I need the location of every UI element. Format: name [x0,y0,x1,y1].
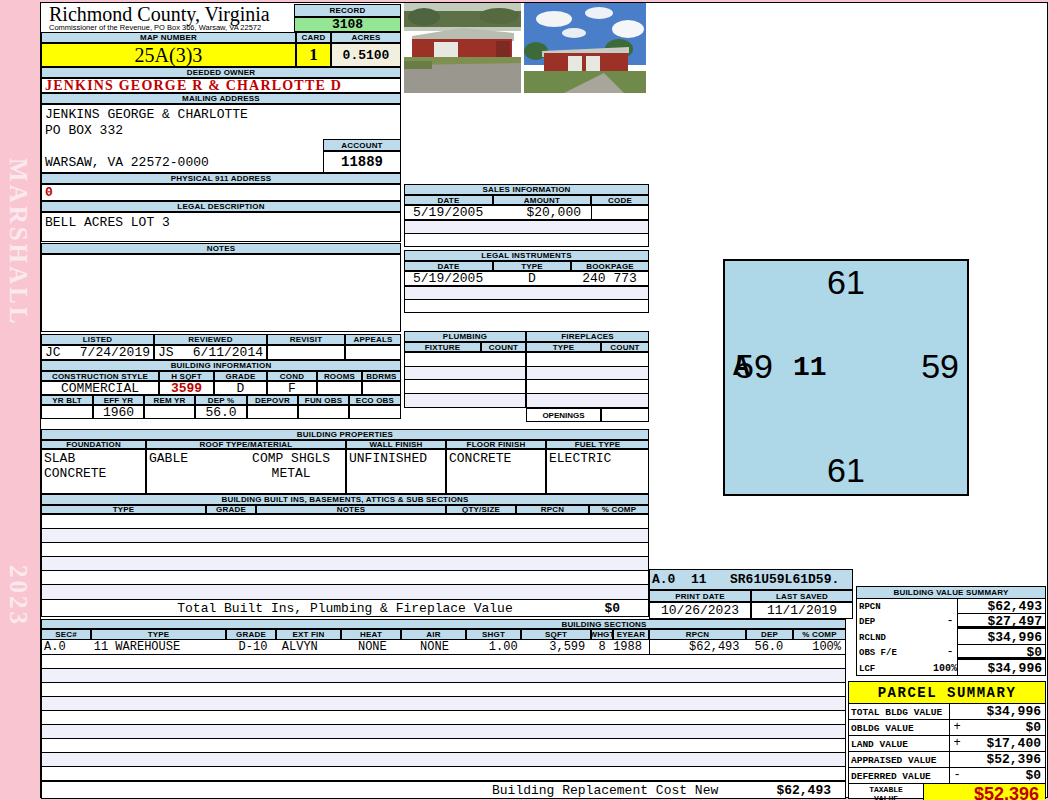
cond-label: COND [267,371,317,381]
rooms-value [317,381,362,395]
empty-row [42,557,648,571]
built-ins-total-row: Total Built Ins, Plumbing & Fireplace Va… [41,599,649,617]
empty-row [405,300,648,313]
empty-row [42,739,845,753]
building-information-title: BUILDING INFORMATION [41,360,401,371]
foundation-line-1: SLAB [44,451,106,466]
empty-row [42,571,648,585]
bs-sec-value: A.0 [42,640,94,654]
legal-empty-rows [404,286,649,313]
parcel-summary-title: PARCEL SUMMARY [849,682,1045,704]
bs-grade-label: GRADE [226,629,276,640]
bs-type-label: TYPE [91,629,226,640]
fuel-type-label: FUEL TYPE [546,440,649,449]
reviewed-by: JS [158,345,174,360]
mailing-line-1: JENKINS GEORGE & CHARLOTTE [45,107,400,123]
empty-row [42,753,845,767]
bvs-dep-value: $27,497 [957,614,1045,629]
depovr-value [247,405,298,419]
vendor-watermark: MARSHALL [4,158,32,326]
legal-instruments-row: 5/19/2005 D 240 773 [404,271,649,286]
built-ins-total-label: Total Built Ins, Plumbing & Fireplace Va… [177,601,512,616]
empty-row [42,683,845,697]
empty-row [405,234,648,247]
bs-eyear-value: 1988 [613,640,649,654]
bs-grade-value: D-10 [228,640,278,654]
revisit-value [267,345,345,360]
bi-grade-label: GRADE [206,505,256,514]
built-ins-empty-rows [41,514,649,599]
bvs-lcf-pct: 100% [929,660,957,676]
bdrms-value [362,381,401,395]
roof-material-line-2: METAL [237,466,345,481]
bi-rpcn-label: RPCN [516,505,589,514]
cond-value: F [267,381,317,395]
construction-style-label: CONSTRUCTION STYLE [41,371,159,381]
grade-value: D [214,381,267,395]
empty-row [42,669,845,683]
bs-rpcn-label: RPCN [649,629,746,640]
funobs-label: FUN OBS [298,395,349,405]
appeals-label: APPEALS [345,334,401,345]
card-value: 1 [296,43,331,67]
hsqft-label: H SQFT [159,371,214,381]
empty-row [42,767,845,781]
mailing-line-2: PO BOX 332 [45,123,400,139]
empty-row [405,221,648,234]
openings-value [601,408,649,422]
sales-date-label: DATE [404,195,493,205]
last-saved-value: 11/1/2019 [751,602,853,619]
empty-row [42,697,845,711]
built-ins-title: BUILDING BUILT INS, BASEMENTS, ATTICS & … [41,494,649,505]
building-sections-title: BUILDING SECTIONS [539,620,669,629]
roof-type-value: GABLE [147,451,237,466]
notes-value [41,254,401,332]
legal-description-value: BELL ACRES LOT 3 [41,212,401,242]
ps-appraised-label: APPRAISED VALUE [849,752,950,767]
ps-taxable-value: $52,396 [924,784,1045,800]
replacement-cost-label: Building Replacement Cost New [492,783,718,798]
property-photo-side[interactable] [524,3,646,93]
bvs-dep-label: DEP [857,614,943,629]
bs-dep-value: 56.0 [746,640,793,654]
replacement-cost-row: Building Replacement Cost New $62,493 [41,781,846,799]
reviewed-label: REVIEWED [154,334,267,345]
legal-description-label: LEGAL DESCRIPTION [41,201,401,212]
fireplace-type-label: TYPE [526,342,601,352]
empty-row [42,543,648,557]
ps-total-bldg-op [950,704,964,719]
empty-row [527,380,648,394]
sketch-left-group: 59 A 11 [735,347,773,393]
floor-finish-label: FLOOR FINISH [446,440,546,449]
bvs-dep-op: - [943,614,957,629]
listed-label: LISTED [41,334,154,345]
effyr-label: EFF YR [93,395,144,405]
empty-row [42,725,845,739]
record-box: RECORD 3108 [294,4,401,32]
bs-rpcn-value: $62,493 [649,640,746,654]
building-sketch: 61 59 A 11 59 61 [723,259,969,496]
ps-obldg-op: + [950,720,964,735]
bvs-obs-op: - [943,645,957,660]
legal-instruments-title: LEGAL INSTRUMENTS [404,250,649,261]
empty-row [42,529,648,543]
reviewed-value: JS 6/11/2014 [154,345,267,360]
building-sections-title-strip: BUILDING SECTIONS [41,619,846,629]
ps-land-op: + [950,736,964,751]
li-bookpage-value: 240 773 [571,271,649,286]
listed-value: JC 7/24/2019 [41,345,154,360]
bvs-lcf-label: LCF [857,660,929,676]
openings-label: OPENINGS [526,408,601,422]
depovr-label: DEPOVR [247,395,298,405]
bs-whgt-value: 8 [591,640,613,654]
listed-by: JC [45,345,61,360]
ps-deferred-label: DEFERRED VALUE [849,768,950,783]
foundation-value: SLAB CONCRETE [41,449,146,494]
li-type-label: TYPE [493,261,571,271]
plumbing-title: PLUMBING [404,331,526,342]
account-value: 11889 [323,151,401,173]
building-value-summary-title: BUILDING VALUE SUMMARY [857,587,1045,599]
bvs-obs-label: OBS F/E [857,645,943,660]
fireplaces-title: FIREPLACES [526,331,649,342]
yrblt-value [41,405,93,419]
li-date-value: 5/19/2005 [404,271,493,286]
plumbing-section: PLUMBING FIXTURE COUNT [404,331,526,406]
map-number-value: 25A(3)3 [41,43,296,67]
construction-style-value: COMMERCIAL [41,381,159,395]
sales-code-label: CODE [591,195,649,205]
dep-pct-value: 56.0 [195,405,247,419]
card-label: CARD [296,32,331,43]
bs-air-value: NONE [402,640,467,654]
roof-value: GABLE COMP SHGLS METAL [146,449,346,494]
li-type-value: D [493,271,571,286]
plumbing-count-label: COUNT [481,342,526,352]
ps-deferred-value: $0 [964,768,1045,783]
foundation-line-2: CONCRETE [44,466,106,481]
grade-label: GRADE [214,371,267,381]
sketch-section-type: 11 [793,352,827,383]
dep-pct-label: DEP % [195,395,247,405]
empty-row [527,353,648,367]
bs-extfin-label: EXT FIN [276,629,341,640]
built-ins-total-value: $0 [604,601,620,616]
fireplaces-section: FIREPLACES TYPE COUNT OPENINGS [526,331,649,420]
appeals-value [345,345,401,360]
bvs-rpcn-label: RPCN [857,599,943,614]
ps-appraised-op [950,752,964,767]
print-date-label: PRINT DATE [649,590,751,602]
sketch-section-label: A [733,352,750,383]
print-date-value: 10/26/2023 [649,602,751,619]
bs-sqft-value: 3,599 [522,640,592,654]
effyr-value: 1960 [93,405,144,419]
fixture-label: FIXTURE [404,342,481,352]
ps-land-value: $17,400 [964,736,1045,751]
ps-taxable-label: TAXABLE VALUE [849,784,924,800]
account-box: ACCOUNT 11889 [323,139,401,173]
fuel-type-value: ELECTRIC [546,449,649,494]
bs-dep-label: DEP [746,629,793,640]
bvs-lcf-value: $34,996 [957,660,1045,676]
revisit-label: REVISIT [267,334,345,345]
bi-type-label: TYPE [41,505,206,514]
wall-finish-value: UNFINISHED [346,449,446,494]
bs-sqft-label: SQFT [521,629,591,640]
empty-row [405,367,525,380]
sales-date-value: 5/19/2005 [404,205,493,220]
building-sections-row: A.0 11 WAREHOUSE D-10 ALVYN NONE NONE 1.… [41,640,846,655]
bs-comp-label: % COMP [793,629,846,640]
sales-information-title: SALES INFORMATION [404,184,649,195]
acres-label: ACRES [331,32,401,43]
fireplace-count-label: COUNT [601,342,649,352]
physical-address-label: PHYSICAL 911 ADDRESS [41,173,401,184]
photo-side-image [524,3,646,93]
last-saved-label: LAST SAVED [751,590,853,602]
empty-row [405,394,525,407]
ps-obldg-value: $0 [964,720,1045,735]
acres-value: 0.5100 [331,43,401,67]
notes-label: NOTES [41,243,401,254]
wall-finish-label: WALL FINISH [346,440,446,449]
bs-heat-value: NONE [343,640,403,654]
roof-label: ROOF TYPE/MATERIAL [146,440,346,449]
sales-amount-label: AMOUNT [493,195,591,205]
bi-qty-label: QTY/SIZE [446,505,516,514]
replacement-cost-value: $62,493 [776,783,831,798]
bvs-rclnd-label: RCLND [857,629,943,645]
bs-extfin-value: ALVYN [278,640,343,654]
remyr-value [144,405,195,419]
building-properties-title: BUILDING PROPERTIES [41,429,649,440]
ps-deferred-op: - [950,768,964,783]
ps-land-label: LAND VALUE [849,736,950,751]
bs-heat-label: HEAT [341,629,401,640]
empty-row [42,711,845,725]
bs-shgt-value: 1.00 [467,640,522,654]
sales-row: 5/19/2005 $20,000 [404,205,649,220]
bs-sec-label: SEC# [41,629,91,640]
bvs-rclnd-value: $34,996 [957,629,1045,645]
listed-date: 7/24/2019 [80,345,150,360]
funobs-value [298,405,349,419]
bi-notes-label: NOTES [256,505,446,514]
empty-row [527,394,648,407]
sales-code-value [591,205,649,220]
bs-shgt-label: SHGT [466,629,521,640]
bs-type-value: 11 WAREHOUSE [94,640,228,654]
empty-row [527,367,648,380]
hsqft-value: 3599 [159,381,214,395]
yrblt-label: YR BLT [41,395,93,405]
parcel-summary: PARCEL SUMMARY TOTAL BLDG VALUE $34,996 … [848,681,1046,799]
roof-material-line-1: COMP SHGLS [237,451,345,466]
empty-row [405,380,525,394]
ecoobs-value [349,405,401,419]
bdrms-label: BDRMS [362,371,401,381]
mailing-address-label: MAILING ADDRESS [41,93,401,104]
reviewed-date: 6/11/2014 [193,345,263,360]
empty-row [405,353,525,367]
record-label: RECORD [294,4,401,17]
ps-total-bldg-label: TOTAL BLDG VALUE [849,704,950,719]
bvs-rclnd-op [943,629,957,645]
sketch-dim-right: 59 [921,347,959,386]
remyr-label: REM YR [144,395,195,405]
foundation-label: FOUNDATION [41,440,146,449]
li-date-label: DATE [404,261,493,271]
empty-row [405,287,648,300]
empty-row [42,585,648,599]
rooms-label: ROOMS [317,371,362,381]
physical-address-value: 0 [41,184,401,201]
record-value: 3108 [294,17,401,32]
commissioner-line: Commissioner of the Revenue, PO Box 366,… [49,23,261,32]
sketch-vector-string: A.0 11 SR61U59L61D59. [649,569,853,590]
map-number-label: MAP NUMBER [41,32,296,43]
li-bookpage-label: BOOKPAGE [571,261,649,271]
sales-empty-rows [404,220,649,247]
floor-finish-value: CONCRETE [446,449,546,494]
building-sections-empty-rows [41,655,846,781]
deeded-owner-value: JENKINS GEORGE R & CHARLOTTE D [41,78,401,93]
photo-front-image [404,3,521,93]
sketch-dim-bottom: 61 [725,451,967,490]
bvs-obs-value: $0 [957,645,1045,660]
property-record-card: Richmond County, Virginia Commissioner o… [40,2,1048,798]
property-photo-front[interactable] [404,3,521,93]
bi-comp-label: % COMP [589,505,649,514]
ps-obldg-label: OBLDG VALUE [849,720,950,735]
year-watermark: 2023 [4,565,32,627]
bs-air-label: AIR [401,629,466,640]
bs-eyear-label: EYEAR [613,629,649,640]
building-value-summary: BUILDING VALUE SUMMARY RPCN $62,493 DEP … [856,586,1046,676]
sales-amount-value: $20,000 [493,205,591,220]
deeded-owner-label: DEEDED OWNER [41,67,401,78]
empty-row [42,515,648,529]
account-label: ACCOUNT [323,139,401,151]
sketch-dim-top: 61 [725,263,967,302]
ps-total-bldg-value: $34,996 [964,704,1045,719]
ps-appraised-value: $52,396 [964,752,1045,767]
bs-comp-value: 100% [792,640,845,654]
ecoobs-label: ECO OBS [349,395,401,405]
bvs-rpcn-value: $62,493 [957,599,1045,614]
bvs-rpcn-op [943,599,957,614]
bs-whgt-label: WHGT [591,629,613,640]
empty-row [42,655,845,669]
